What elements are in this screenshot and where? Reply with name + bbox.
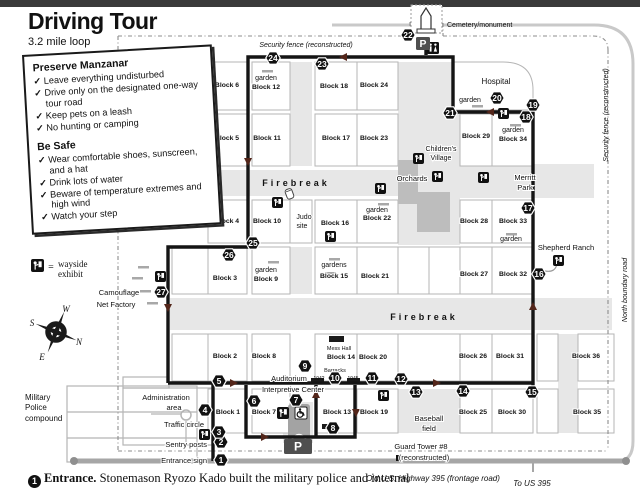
stop-number: 11	[368, 373, 377, 383]
map-label: gardens	[321, 262, 347, 269]
stop-number: 21	[445, 108, 455, 118]
map-label: Mess Hall	[327, 346, 351, 352]
highway-endcap	[622, 457, 630, 465]
map-label: 1942	[313, 376, 324, 382]
tour-stop-24: 24	[266, 52, 280, 64]
map-label: Orchards	[397, 174, 428, 183]
stop-number: 16	[534, 269, 544, 279]
map-label: garden	[255, 267, 277, 274]
map-label: garden	[459, 97, 481, 104]
map-label: Net Factory	[97, 300, 136, 309]
empty-cell	[398, 334, 460, 381]
stop-number: 10	[330, 373, 340, 383]
icon-panel	[484, 174, 487, 179]
icon-head	[34, 261, 37, 264]
icon-panel	[381, 185, 384, 190]
block-label: Block 14	[327, 354, 355, 361]
icon-head	[279, 409, 282, 412]
tour-stop-4: 4	[198, 404, 212, 416]
orchard-area	[417, 192, 450, 232]
garden-bar	[140, 290, 151, 293]
icon-panel	[39, 261, 42, 267]
empty-cell	[429, 247, 460, 294]
wayside-exhibit-icon	[498, 108, 509, 119]
block-label: Block 30	[498, 409, 526, 416]
icon-panel	[205, 431, 208, 436]
tour-stop-15: 15	[525, 386, 539, 398]
stop-number: 17	[523, 203, 533, 213]
cemetery-monument-icon	[411, 5, 442, 33]
garden-bar	[147, 302, 158, 305]
visitor-rules-box: Preserve Manzanar Leave everything undis…	[22, 44, 222, 235]
empty-cell	[537, 389, 558, 433]
block-cell	[357, 247, 398, 294]
block-label: Block 33	[499, 218, 527, 225]
icon-panel	[278, 199, 281, 204]
empty-cell	[172, 334, 208, 381]
map-label: Police	[25, 403, 47, 412]
map-label: Traffic circle	[164, 420, 204, 429]
block-label: Block 32	[499, 271, 527, 278]
parking-letter: P	[420, 39, 427, 50]
tour-stop-22: 22	[401, 29, 415, 41]
stop-number: 18	[521, 112, 531, 122]
compass-letter: W	[62, 304, 71, 314]
wayside-exhibit-icon	[277, 407, 289, 419]
legend-equals: =	[48, 262, 54, 273]
block-label: Block 5	[215, 135, 239, 142]
map-label: field	[422, 424, 436, 433]
icon-bg	[31, 259, 44, 272]
block-label: Block 7	[252, 409, 276, 416]
icon-panel	[161, 273, 164, 278]
block-cell	[315, 247, 357, 294]
tour-stop-10: 10	[328, 372, 342, 384]
icon-head	[201, 431, 204, 434]
accessible-icon	[295, 407, 307, 419]
tour-stop-6: 6	[247, 395, 261, 407]
block-cell	[460, 114, 492, 166]
map-label: 1945	[347, 376, 358, 382]
block-label: Block 13	[323, 409, 351, 416]
icon-head	[377, 185, 380, 188]
tour-stop-7: 7	[289, 394, 303, 406]
icon-bg	[277, 407, 289, 419]
icon-panel	[419, 155, 422, 160]
tour-stop-25: 25	[246, 237, 260, 249]
map-label: Children's	[426, 146, 457, 153]
map-label: Entrance sign	[161, 456, 207, 465]
compass-rose	[36, 312, 77, 353]
block-label: Block 23	[360, 135, 388, 142]
stop-number: 15	[527, 387, 537, 397]
icon-head	[327, 233, 330, 236]
stop-number: 7	[294, 395, 299, 405]
wayside-exhibit-icon	[325, 231, 336, 242]
map-label: Village	[431, 155, 452, 162]
tour-stop-26: 26	[222, 249, 236, 261]
icon-bg	[432, 171, 443, 182]
icon-panel	[284, 409, 287, 414]
footer-caption: 1Entrance. Stonemason Ryozo Kado built t…	[28, 471, 628, 488]
block-label: Block 18	[320, 83, 348, 90]
icon-head	[299, 408, 301, 410]
garden-bar	[262, 70, 273, 73]
icon-head	[274, 199, 277, 202]
tour-stop-5: 5	[212, 375, 226, 387]
stop-number: 4	[203, 405, 208, 415]
icon-head	[434, 173, 437, 176]
stop-number: 20	[492, 93, 502, 103]
obelisk-base	[417, 29, 435, 33]
block-label: Block 20	[359, 354, 387, 361]
firebreak-area	[290, 62, 312, 166]
legend-wayside-label: exhibit	[58, 269, 83, 279]
tour-stop-1: 1	[214, 454, 228, 466]
stop-number: 27	[156, 287, 166, 297]
block-label: Block 19	[360, 409, 388, 416]
stop-number: 3	[217, 427, 222, 437]
garden-bar	[378, 203, 389, 206]
block-label: Block 6	[215, 82, 239, 89]
block-label: Block 17	[322, 135, 350, 142]
block-label: Block 29	[462, 133, 490, 140]
block-label: Block 35	[573, 409, 601, 416]
icon-bg	[155, 271, 166, 282]
map-label: Firebreak	[390, 312, 458, 322]
map-label: Interpretive Center	[262, 385, 325, 394]
firebreak-area	[290, 247, 312, 294]
tour-stop-16: 16	[532, 268, 546, 280]
block-label: Block 15	[320, 273, 348, 280]
block-label: Block 10	[253, 218, 281, 225]
map-label: Camouflage	[99, 288, 139, 297]
block-label: Block 34	[499, 136, 527, 143]
parking-icon: P	[284, 439, 312, 454]
wayside-exhibit-icon	[413, 153, 424, 164]
map-label: Shepherd Ranch	[538, 243, 594, 252]
icon-bg	[199, 429, 210, 440]
map-label: North boundary road	[622, 257, 629, 322]
route-arrow-e	[261, 433, 269, 441]
stop-number: 12	[396, 374, 406, 384]
map-label: Judo	[296, 214, 311, 221]
icon-bg	[498, 108, 509, 119]
map-label: Security fence (reconstructed)	[603, 68, 610, 161]
tour-stop-27: 27	[154, 286, 168, 298]
empty-cell	[172, 247, 208, 294]
icon-bg	[553, 255, 564, 266]
tour-stop-19: 19	[526, 99, 540, 111]
firebreak-area	[558, 334, 578, 433]
tour-stop-11: 11	[365, 372, 379, 384]
block-label: Block 16	[321, 220, 349, 227]
map-label: site	[297, 223, 308, 230]
tour-stop-14: 14	[456, 385, 470, 397]
block-label: Block 3	[213, 275, 237, 282]
stop-number: 19	[528, 100, 538, 110]
compass-letter: E	[38, 352, 45, 362]
block-label: Block 28	[460, 218, 488, 225]
map-label: Baseball	[415, 414, 444, 423]
stop-number: 24	[268, 53, 278, 63]
preserve-list: Leave everything undisturbedDrive only o…	[33, 67, 208, 134]
block-label: Block 36	[572, 353, 600, 360]
icon-bg	[375, 183, 386, 194]
wayside-exhibit-icon	[272, 197, 283, 208]
wayside-exhibit-icon	[155, 271, 166, 282]
tour-stop-12: 12	[394, 373, 408, 385]
icon-bg	[478, 172, 489, 183]
icon-panel	[384, 392, 387, 397]
wayside-exhibit-icon	[31, 259, 44, 272]
wayside-exhibit-icon	[432, 171, 443, 182]
map-label: Hospital	[482, 77, 511, 86]
wayside-exhibit-icon	[199, 429, 210, 440]
parking-letter: P	[294, 440, 302, 454]
block-label: Block 27	[460, 271, 488, 278]
tour-stop-8: 8	[326, 422, 340, 434]
tour-stop-21: 21	[443, 107, 457, 119]
block-label: Block 26	[459, 353, 487, 360]
icon-bg	[413, 153, 424, 164]
map-label: Cemetery/monument	[447, 22, 512, 29]
empty-cell	[398, 247, 429, 294]
block-label: Block 12	[252, 84, 280, 91]
stop-number: 26	[224, 250, 234, 260]
stop-number: 6	[252, 396, 257, 406]
block-label: Block 21	[361, 273, 389, 280]
map-label: Sentry posts	[165, 440, 207, 449]
empty-cell	[290, 200, 312, 243]
route-arrow-w	[339, 53, 347, 61]
icon-head	[555, 257, 558, 260]
legend-wayside-label: wayside	[58, 259, 88, 269]
highway-endcap	[70, 457, 78, 465]
wayside-exhibit-icon	[378, 390, 389, 401]
garden-bar	[138, 266, 149, 269]
tour-stop-23: 23	[315, 58, 329, 70]
map-label: area	[166, 403, 182, 412]
map-label: compound	[25, 414, 62, 423]
icon-head	[434, 43, 436, 45]
footer-entrance-text: Stonemason Ryozo Kado built the military…	[100, 471, 410, 485]
stop-number: 5	[217, 376, 222, 386]
map-label: Merritt	[514, 173, 536, 182]
map-label: Administration	[142, 393, 190, 402]
block-label: Block 11	[253, 135, 281, 142]
map-label: (reconstructed)	[399, 453, 450, 462]
block-label: Block 2	[213, 353, 237, 360]
stop-number: 22	[403, 30, 413, 40]
icon-bg	[272, 197, 283, 208]
map-label: garden	[500, 236, 522, 243]
icon-bg	[378, 390, 389, 401]
compass-letter: S	[30, 318, 35, 328]
stop-number: 13	[411, 387, 421, 397]
wayside-exhibit-icon	[553, 255, 564, 266]
icon-head	[380, 392, 383, 395]
garden-bar	[132, 277, 143, 280]
tour-stop-17: 17	[521, 202, 535, 214]
map-label: Park	[517, 183, 533, 192]
security-fence	[443, 36, 608, 50]
icon-panel	[504, 110, 507, 115]
stop-number: 23	[317, 59, 327, 69]
icon-head	[157, 273, 160, 276]
map-label: Military	[25, 393, 50, 402]
block-label: Block 25	[459, 409, 487, 416]
icon-panel	[438, 173, 441, 178]
tour-stop-3: 3	[212, 426, 226, 438]
icon-head	[480, 174, 483, 177]
map-label: Firebreak	[262, 178, 330, 188]
tour-stop-18: 18	[519, 111, 533, 123]
tour-stop-20: 20	[490, 92, 504, 104]
block-label: Block 22	[363, 215, 391, 222]
icon-panel	[559, 257, 562, 262]
stop-number: 1	[219, 455, 224, 465]
parking-icon: P	[416, 37, 430, 50]
stop-1-badge: 1	[28, 475, 41, 488]
garden-bar	[472, 105, 483, 108]
footer-entrance-label: Entrance.	[44, 471, 96, 485]
icon-bg	[325, 231, 336, 242]
map-label: garden	[255, 75, 277, 82]
map-label: garden	[502, 127, 524, 134]
compass-letter: N	[75, 337, 83, 347]
icon-panel	[331, 233, 334, 238]
block-label: Block 31	[496, 353, 524, 360]
block-label: Block 8	[252, 353, 276, 360]
wayside-exhibit-icon	[375, 183, 386, 194]
tour-stop-9: 9	[298, 360, 312, 372]
block-label: Block 1	[216, 409, 240, 416]
empty-cell	[537, 334, 558, 381]
garden-bar	[329, 258, 340, 261]
building-bar	[329, 336, 344, 342]
icon-head	[415, 155, 418, 158]
garden-bar	[268, 261, 279, 264]
map-label: Auditorium	[271, 374, 307, 383]
block-label: Block 9	[254, 276, 278, 283]
stop-number: 8	[331, 423, 336, 433]
stop-number: 9	[303, 361, 308, 371]
tour-stop-13: 13	[409, 386, 423, 398]
stop-number: 25	[248, 238, 258, 248]
map-label: Guard Tower #8	[394, 442, 447, 451]
be-safe-list: Wear comfortable shoes, sunscreen, and a…	[38, 146, 214, 224]
stop-number: 14	[458, 386, 468, 396]
map-label: Security fence (reconstructed)	[259, 42, 352, 49]
wayside-exhibit-icon	[478, 172, 489, 183]
map-label: garden	[366, 207, 388, 214]
block-label: Block 24	[360, 82, 388, 89]
icon-head	[500, 110, 503, 113]
